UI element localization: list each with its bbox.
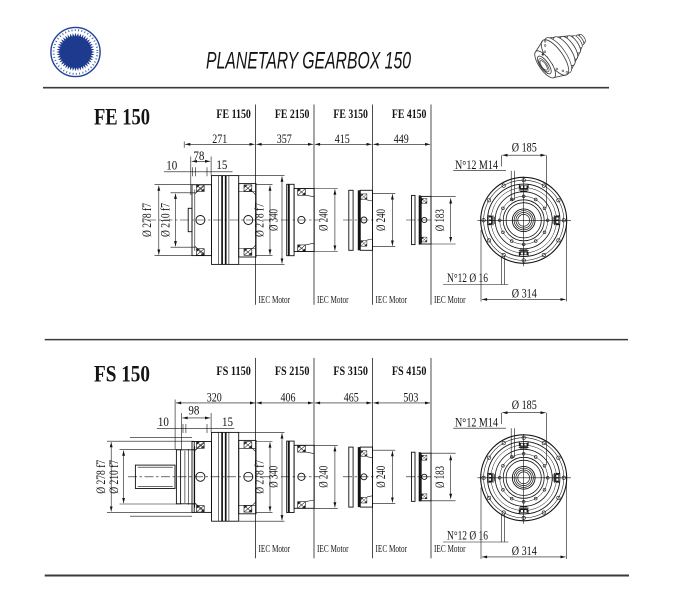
svg-text:FS 4150: FS 4150 [392,364,427,378]
svg-text:415: 415 [335,132,350,146]
svg-text:10: 10 [166,158,177,172]
svg-text:Ø 210 f7: Ø 210 f7 [107,460,121,494]
svg-text:Ø 278 f7: Ø 278 f7 [94,460,108,494]
svg-text:503: 503 [403,390,418,404]
svg-text:PLANETARY GEARBOX 150: PLANETARY GEARBOX 150 [206,48,411,75]
svg-text:FE 2150: FE 2150 [275,107,310,121]
svg-text:78: 78 [193,149,204,163]
svg-text:FS 2150: FS 2150 [275,364,310,378]
svg-text:FE 4150: FE 4150 [392,107,427,121]
svg-text:15: 15 [222,415,233,429]
svg-text:10: 10 [158,415,169,429]
svg-text:FS 1150: FS 1150 [216,364,251,378]
svg-text:FS 3150: FS 3150 [333,364,368,378]
svg-text:357: 357 [277,132,292,146]
svg-text:465: 465 [344,390,359,404]
svg-text:320: 320 [207,390,222,404]
svg-text:15: 15 [216,158,227,172]
svg-text:FE 1150: FE 1150 [216,107,251,121]
svg-text:FS 150: FS 150 [94,362,150,387]
svg-text:FE 3150: FE 3150 [333,107,368,121]
svg-text:449: 449 [394,132,409,146]
svg-text:406: 406 [281,390,296,404]
svg-text:98: 98 [188,403,199,417]
svg-text:271: 271 [212,132,227,146]
svg-text:FE 150: FE 150 [94,105,150,130]
